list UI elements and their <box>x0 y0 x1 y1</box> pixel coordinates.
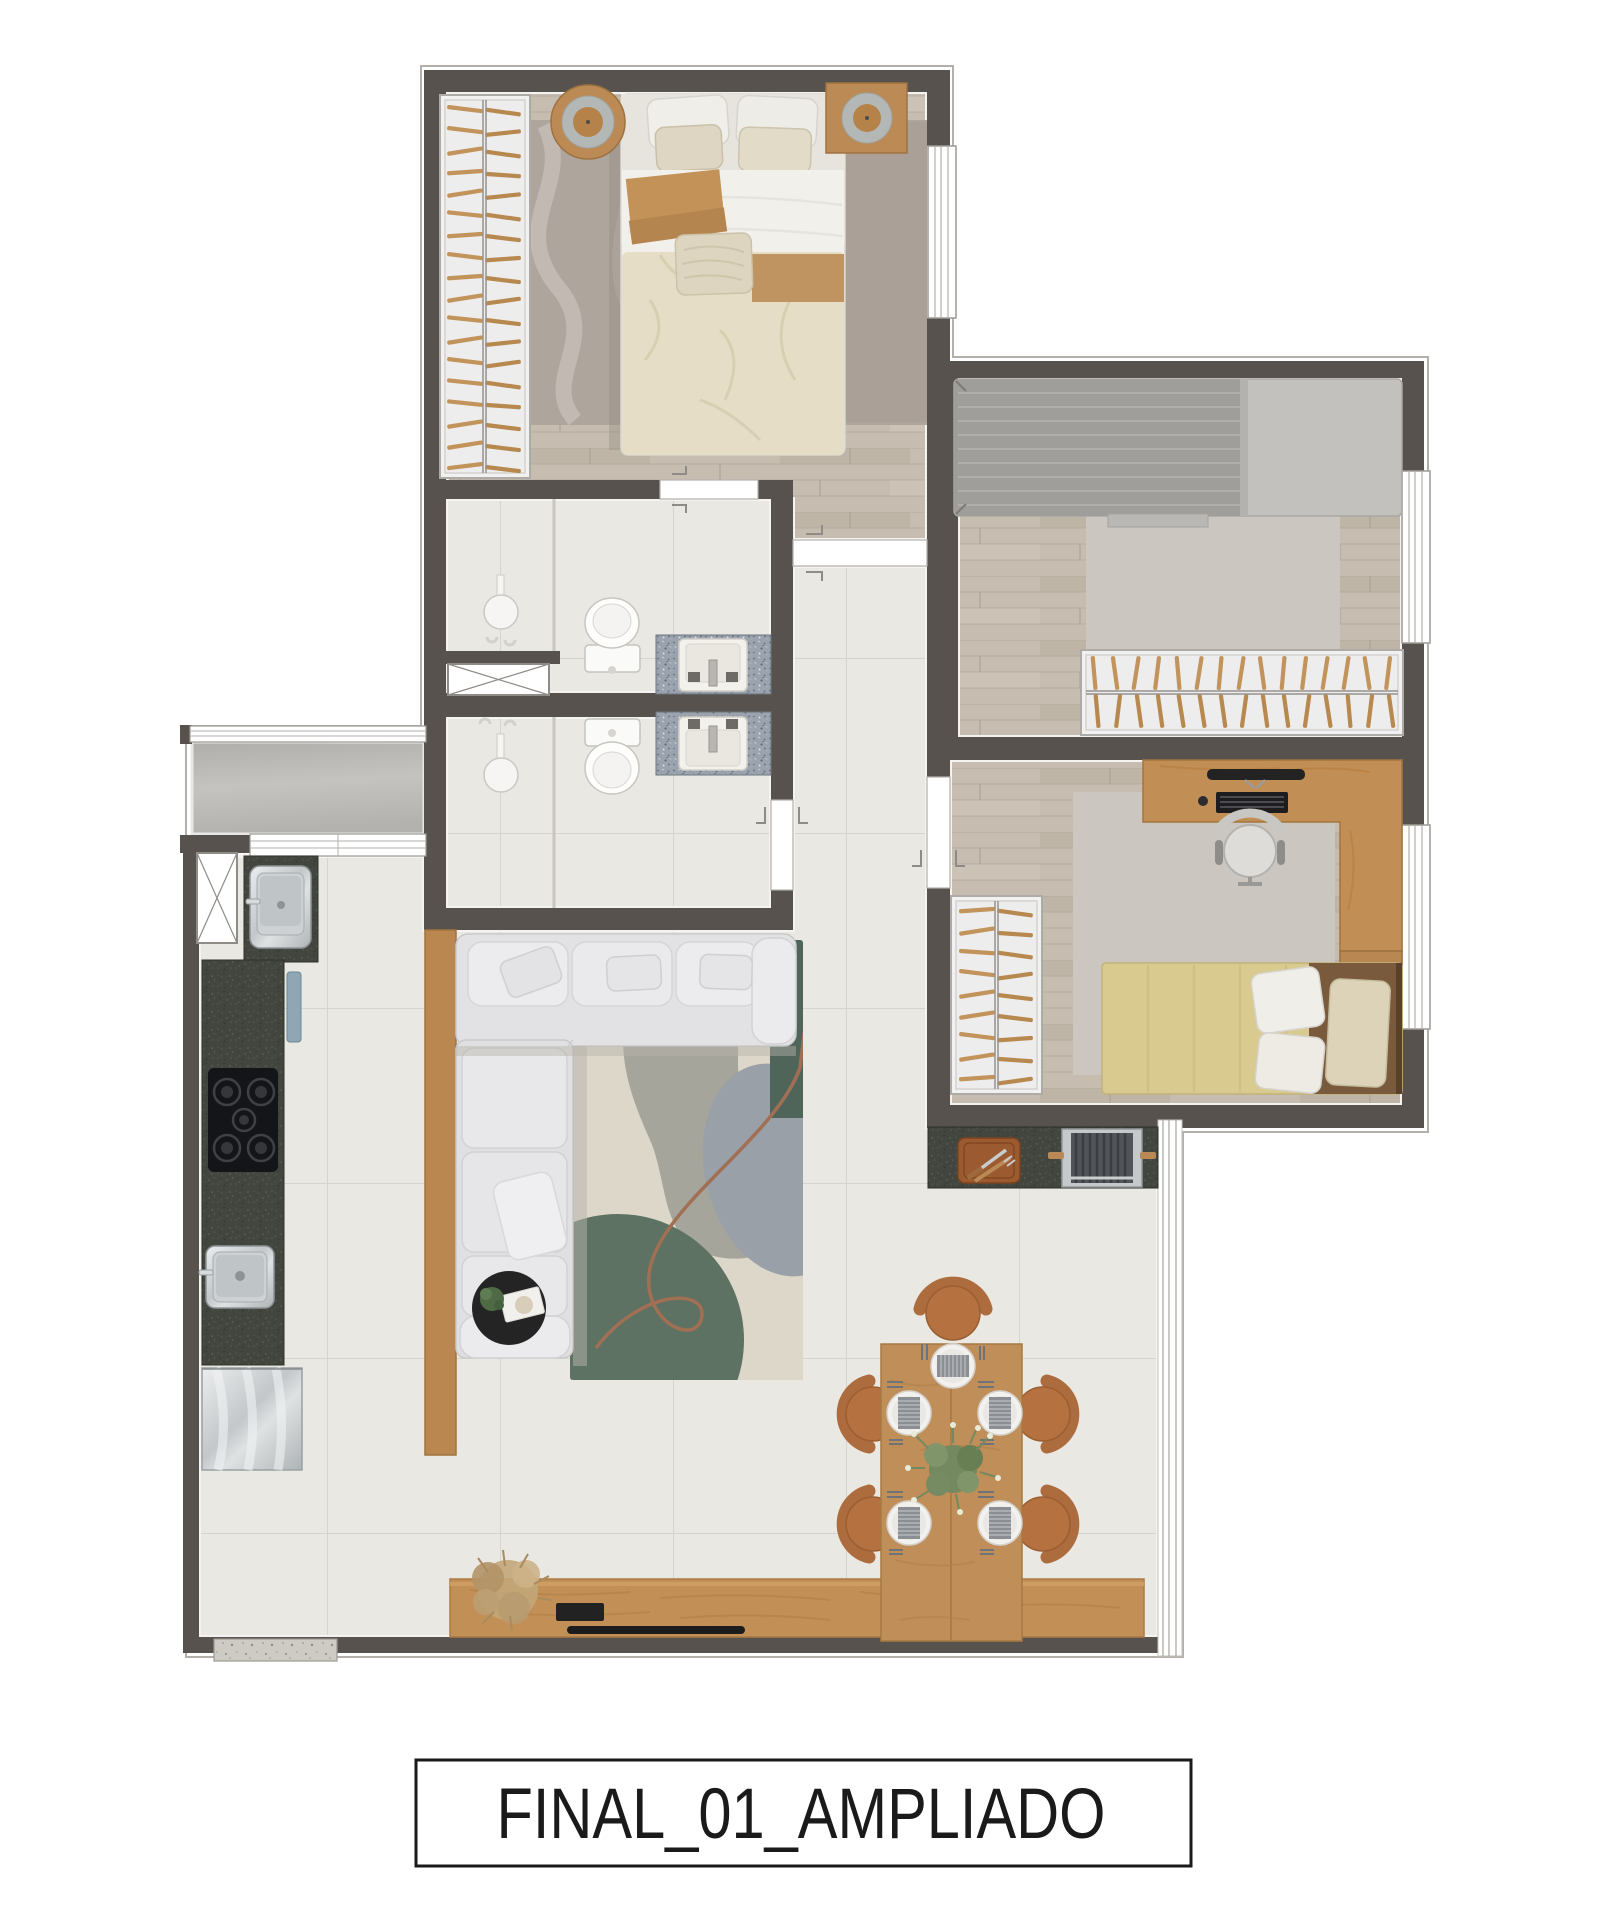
svg-text:FINAL_01_AMPLIADO: FINAL_01_AMPLIADO <box>497 1775 1106 1854</box>
